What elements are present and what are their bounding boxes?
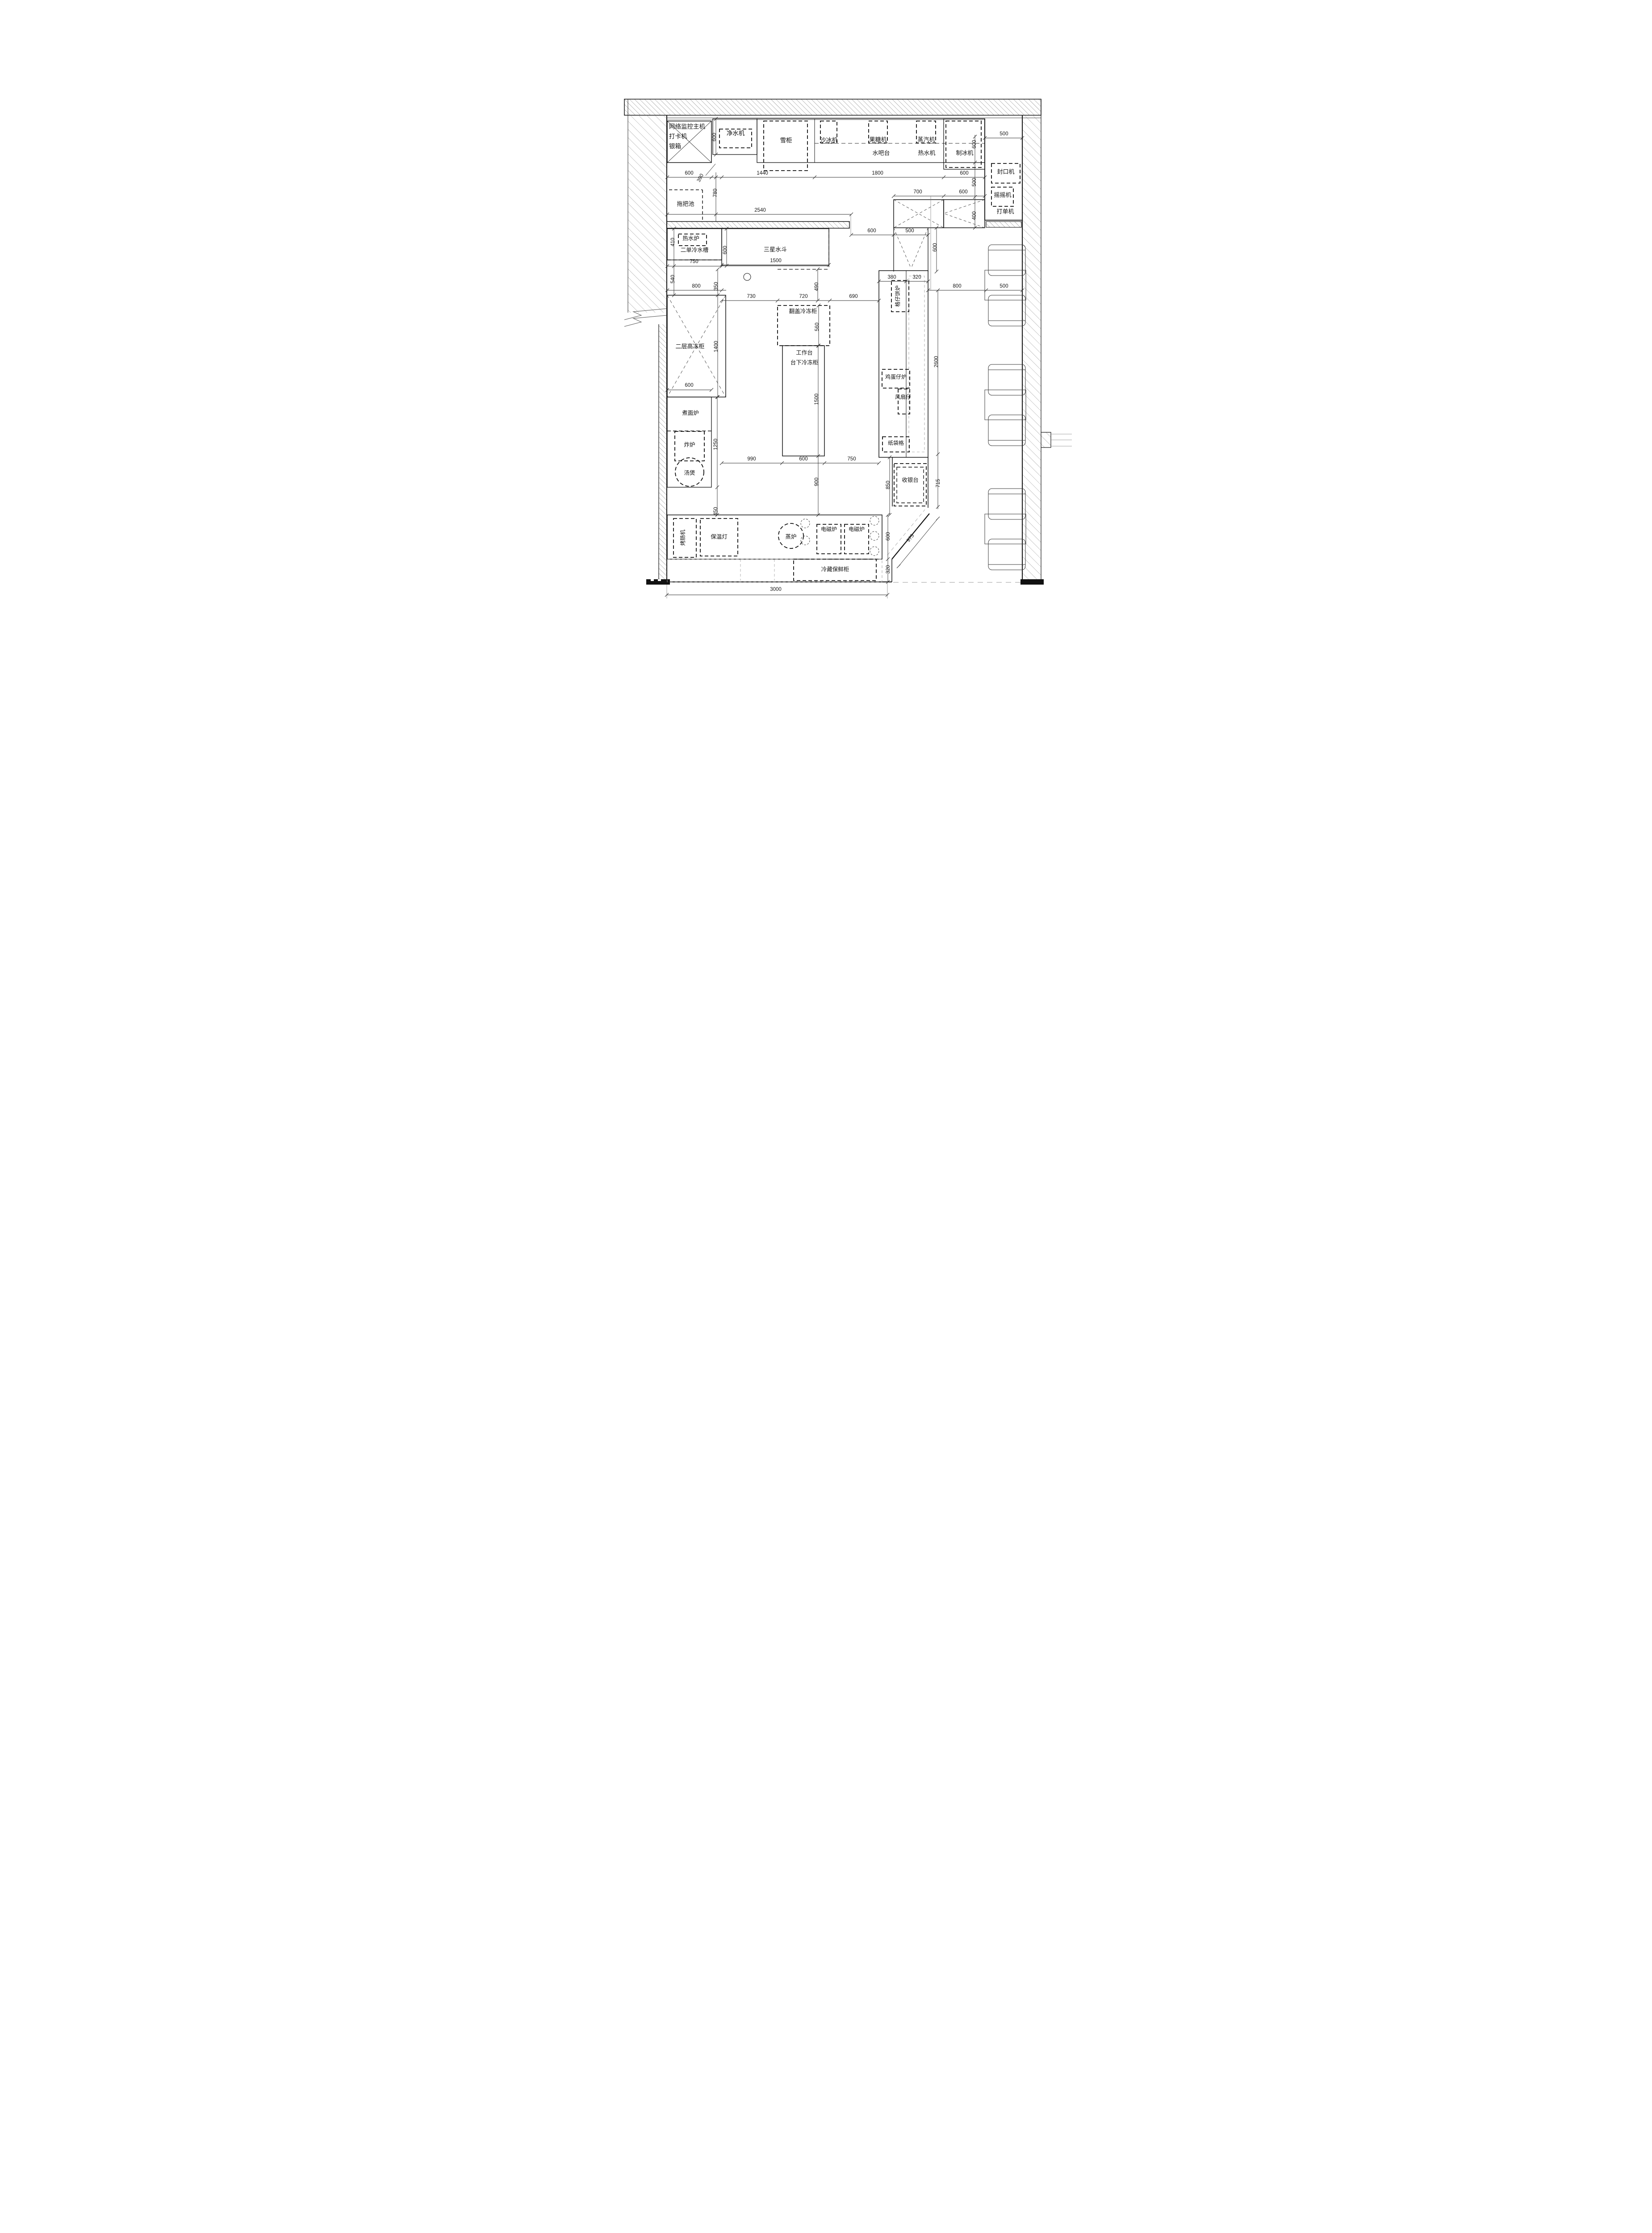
label-network-monitor-host: 网络监控主机: [669, 123, 705, 130]
angled-wall-inner-dashed: [887, 510, 925, 555]
burner-circles: [801, 516, 879, 556]
left-wall-thick: [628, 115, 667, 313]
dims-1440: 1440: [757, 171, 768, 176]
pass-box-700-cross: [894, 200, 944, 228]
ice-maker-cabinet: [944, 119, 985, 169]
seating: [985, 245, 1026, 570]
dims-730: 730: [747, 294, 755, 299]
label-water-bar-counter: 水吧台: [872, 150, 890, 156]
dims-1800: 1800: [872, 171, 883, 176]
floor-plan-canvas: 网络监控主机打卡机银箱净水机雪柜沙冰机果糖机水吧台蒸汽机热水机制冰机封口机摇摇机…: [581, 0, 1072, 699]
dim-line-diagonal-975: [899, 519, 938, 566]
dims-500: 500: [972, 178, 977, 186]
dims-490: 490: [814, 282, 820, 291]
dims-700: 700: [913, 189, 922, 195]
small-fan-box: [898, 389, 910, 414]
snow-cabinet-box: [764, 121, 807, 171]
dims-990: 990: [747, 456, 756, 462]
floor-drain: [744, 273, 751, 280]
pass-box-700: [894, 200, 944, 228]
label-fresh-keeping-cabinet: 冷藏保鲜柜: [821, 566, 849, 573]
dims-600: 600: [712, 133, 717, 141]
dims-560: 560: [815, 322, 820, 331]
label-noodle-cooker: 煮面炉: [682, 410, 699, 416]
left-cap-notch-2: [658, 579, 661, 581]
label-fryer: 炸炉: [684, 442, 695, 448]
dims-500: 500: [1000, 131, 1008, 137]
dims-690: 690: [849, 294, 857, 299]
bottom-counter: [667, 515, 882, 559]
label-fructose-machine: 果糖机: [869, 136, 887, 143]
right-service-counter: [879, 271, 928, 457]
leader-390: [706, 164, 715, 176]
dims-410: 410: [670, 238, 676, 246]
label-worktable: 工作台: [796, 349, 813, 356]
dims-450: 450: [713, 507, 719, 515]
right-counter-inner-dashed: [909, 276, 924, 452]
left-cap-notch-1: [651, 579, 654, 581]
left-wall-band: [659, 324, 667, 579]
dims-800: 800: [692, 284, 700, 289]
exterior-lines-right: [1051, 434, 1072, 446]
dims-380: 380: [887, 275, 896, 280]
label-order-printer: 打单机: [996, 208, 1014, 215]
dims-320: 320: [886, 565, 891, 573]
label-egg-waffle-oven: 鸡蛋仔炉: [885, 373, 906, 380]
bench: [988, 539, 1025, 570]
dims-975: 975: [905, 533, 915, 543]
label-sausage-grill: 烤肠机: [679, 530, 686, 546]
table: [985, 390, 1026, 420]
dims-1400: 1400: [714, 341, 719, 352]
label-waffle-oven: 格仔饼炉: [894, 285, 901, 307]
label-punch-card-machine: 打卡机: [669, 133, 687, 140]
label-small-fan: 风扇仔: [895, 393, 911, 400]
printer-room-bottom-wall: [986, 222, 1021, 227]
bench: [988, 364, 1025, 395]
bench: [988, 415, 1025, 446]
label-ice-maker: 制冰机: [956, 150, 973, 156]
burner-3: [870, 516, 879, 525]
bench: [988, 489, 1025, 519]
dims-600: 600: [959, 189, 967, 195]
label-water-purifier: 净水机: [726, 130, 744, 137]
label-mop-pool: 拖把池: [677, 201, 694, 207]
dims-540: 540: [670, 275, 676, 283]
dims-600: 600: [799, 456, 807, 462]
bottom-lower-strip: [667, 559, 882, 582]
label-double-cold-sink: 二单冷水槽: [680, 247, 708, 253]
label-shaking-machine: 摇摇机: [994, 192, 1011, 198]
label-steam-machine: 蒸汽机: [917, 136, 935, 143]
label-warming-lamp: 保温灯: [711, 534, 728, 540]
dims-850: 850: [886, 481, 891, 489]
dims-500: 500: [905, 228, 914, 234]
cashier-outer-box: [894, 464, 926, 506]
dims-600: 600: [685, 383, 693, 388]
right-wall-band: [1022, 115, 1041, 582]
dims-715: 715: [936, 479, 941, 487]
dims-1500: 1500: [770, 258, 782, 263]
label-slush-machine: 沙冰机: [820, 137, 837, 143]
dims-500: 500: [1000, 284, 1008, 289]
label-snow-cabinet: 雪柜: [780, 137, 792, 144]
dims-2540: 2540: [754, 208, 766, 213]
dims-350: 350: [714, 282, 719, 290]
chute-box-vee: [894, 228, 928, 268]
bench: [988, 245, 1025, 276]
chute-box: [894, 228, 928, 272]
dims-800: 800: [953, 284, 961, 289]
divider-wall: [667, 222, 849, 228]
dims-1500: 1500: [814, 393, 820, 405]
burner-4: [870, 531, 879, 540]
dims-600: 600: [867, 228, 876, 234]
seat-group-3: [985, 489, 1026, 570]
pass-box-600: [944, 200, 985, 228]
seat-group-2: [985, 364, 1026, 446]
label-paper-bag-rack: 纸袋格: [887, 439, 903, 446]
label-undercounter-freezer: 台下冷冻柜: [790, 359, 818, 366]
dims-400: 400: [972, 211, 977, 220]
dims-750: 750: [847, 456, 856, 462]
label-two-layer-freezer: 二层高冻柜: [675, 343, 704, 350]
label-three-star-sink: 三星水斗: [763, 246, 786, 253]
dims-600: 600: [685, 171, 693, 176]
pass-box-600-vee: [944, 200, 985, 228]
dims-3000: 3000: [770, 587, 782, 592]
dims-600: 600: [972, 140, 977, 148]
dims-600: 600: [886, 532, 891, 540]
dims-2600: 2600: [934, 356, 939, 368]
right-wall-bottom-cap: [1020, 579, 1044, 585]
table: [985, 514, 1026, 544]
dims-320: 320: [912, 275, 921, 280]
top-wall: [624, 99, 1041, 115]
label-soup-pot: 汤煲: [684, 469, 695, 476]
label-hot-water-boiler: 热水炉: [682, 235, 699, 242]
label-induction-cooker-1: 电磁炉: [820, 526, 836, 532]
burner-5: [870, 547, 879, 556]
label-induction-cooker-2: 电磁炉: [848, 526, 864, 532]
floor-plan-drawing: 网络监控主机打卡机银箱净水机雪柜沙冰机果糖机水吧台蒸汽机热水机制冰机封口机摇摇机…: [581, 0, 1072, 699]
burner-2: [801, 536, 810, 545]
burner-1: [801, 519, 810, 528]
dims-600: 600: [933, 243, 938, 251]
cashier-inner-box: [897, 467, 924, 503]
dims-720: 720: [799, 294, 807, 299]
label-hot-water-machine: 热水机: [918, 150, 935, 156]
dimension-labels-layer: 6003901440180060050060060050040070060078…: [670, 131, 1008, 592]
dims-1250: 1250: [713, 439, 719, 450]
label-flip-lid-freezer: 翻盖冷冻柜: [789, 308, 817, 314]
label-cashier-counter: 收银台: [902, 477, 919, 483]
dims-750: 750: [690, 259, 698, 264]
dims-600: 600: [960, 171, 968, 176]
label-cash-box: 银箱: [669, 143, 681, 150]
bottom-strip-dividers: [740, 559, 774, 581]
bench: [988, 295, 1025, 326]
dims-390: 390: [696, 173, 705, 183]
dims-900: 900: [814, 477, 820, 486]
label-sealing-machine: 封口机: [997, 168, 1014, 175]
label-steamer: 蒸炉: [785, 534, 796, 540]
dims-600: 600: [723, 246, 728, 254]
right-wall-column-notch: [1041, 432, 1051, 447]
dims-780: 780: [713, 188, 718, 197]
